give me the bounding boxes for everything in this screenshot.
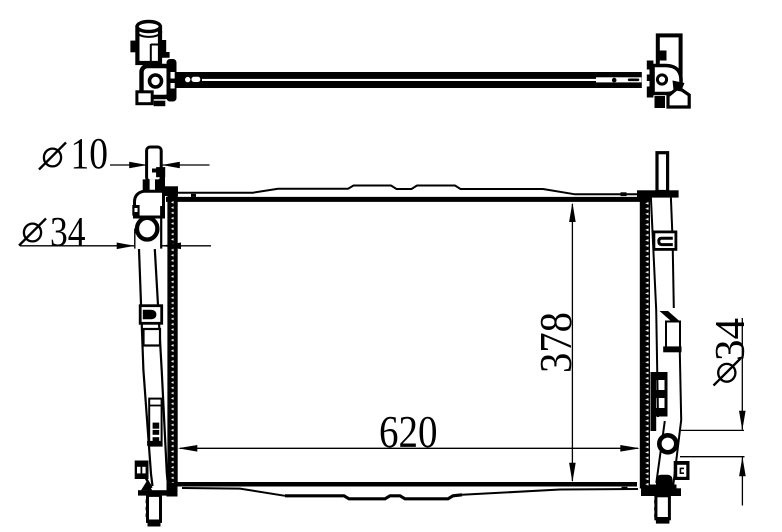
svg-text:620: 620 bbox=[379, 407, 438, 457]
svg-text:34: 34 bbox=[50, 209, 86, 256]
svg-text:10: 10 bbox=[71, 129, 109, 178]
svg-text:34: 34 bbox=[707, 318, 754, 361]
svg-text:378: 378 bbox=[530, 312, 581, 373]
